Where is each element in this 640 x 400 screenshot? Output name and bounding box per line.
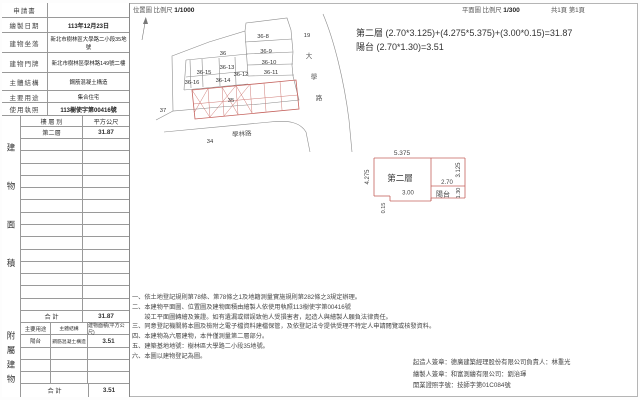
attached-area: 3.51 [88,335,129,347]
parcel-label: 36-13 [220,65,235,71]
empty-row [21,213,129,225]
dim-left: 4.275 [365,169,371,185]
col-header-use: 主要用途 [21,323,51,334]
floor-plan-title: 平面圖 [462,7,481,14]
empty-row [21,139,129,151]
dim-balcony: 1.30 [456,188,462,199]
total-area: 31.87 [83,311,129,322]
dim-bottom: 3.00 [402,191,414,197]
parcel-label: 36-9 [260,49,272,55]
empty-row [21,151,129,163]
builder-signature: 起造人簽章：德廣建築經理股份有限公司負責人：林重光 [413,357,570,369]
info-row-use: 主要用途 集合住宅 [2,91,129,103]
col-header-structure: 主體結構 [51,323,88,334]
empty-row [21,188,129,200]
info-label: 建物門牌 [2,53,48,72]
col-header-floor: 樓 層 別 [21,116,83,126]
total-label: 合 計 [21,384,89,397]
note-line: 一、依土地登記規則第78條、第78條之1及地籍測量實施規則第282條之3規定辦理… [132,293,502,303]
attached-total-row: 合 計 3.51 [21,384,129,397]
building-area-table: 建物面積 樓 層 別 平方公尺 第二層 31.87 [2,116,129,323]
building-area-strip: 建物面積 [2,116,21,323]
road-right-char: 路 [316,93,323,102]
parcel-label: 36-12 [234,72,249,78]
parcel-line [245,31,248,76]
notes-block: 一、依土地登記規則第78條、第78條之1及地籍測量實施規則第282條之3規定辦理… [132,293,502,362]
building-area-grid: 樓 層 別 平方公尺 第二層 31.87 合 計 31.87 [21,116,129,323]
info-label: 主體結構 [2,73,48,90]
parcel-label: 19 [304,33,310,39]
parcel-label: 36 [220,51,226,57]
dim-top: 5.375 [394,150,411,157]
info-row-date: 繪製日期 113年12月23日 [2,18,129,33]
attached-grid: 主要用途 主體結構 建物面積(平方公尺) 陽台 鋼筋混凝土構造 3.51 合 計… [21,323,129,397]
dim-strip: 0.15 [381,203,387,214]
parcel-label: 34 [207,139,214,145]
strip-label: 建物面積 [5,143,17,297]
drafter-signature: 繪製人簽章：和富測繪有限公司：劉治琿 [413,369,570,381]
info-value: 鋼筋混凝土構造 [48,73,129,90]
info-label: 建物坐落 [2,33,48,52]
info-value: 新北市樹林區大學路二小段35地號 [48,33,129,52]
left-info-panel: 申請書 繪製日期 113年12月23日 建物坐落 新北市樹林區大學路二小段35地… [2,3,130,397]
floor-plan-diagram: 5.375 第二層 4.275 3.125 2.70 陽台 1.30 3.00 … [360,140,510,220]
note-line: 竣工平面圖轉繪及簽證。如有遺漏或錯誤致他人受損害者，起造人與繪製人願負法律責任。 [132,313,502,323]
total-label: 合 計 [21,311,83,322]
area-row-floor2: 第二層 31.87 [21,127,129,139]
floor-plan-header: 平面圖 比例尺 1/300 [462,5,520,14]
signature-block: 起造人簽章：德廣建築經理股份有限公司負責人：林重光 繪製人簽章：和富測繪有限公司… [413,357,570,392]
empty-row [21,164,129,176]
attached-structure: 鋼筋混凝土構造 [51,335,88,347]
parcel-label: 36-10 [262,60,277,66]
page-indicator: 共1頁 第1頁 [551,5,585,14]
info-row-structure: 主體結構 鋼筋混凝土構造 [2,73,129,91]
info-row-application: 申請書 [2,3,129,18]
balcony-label: 陽台 [436,190,450,199]
dim-inner: 2.70 [441,180,453,186]
info-label: 使用執照 [2,103,48,115]
road-bottom-name: 學林路 [232,128,253,138]
floor-name: 第二層 [21,127,83,138]
empty-row [21,225,129,237]
info-value: 113年12月23日 [48,18,129,32]
empty-row [21,286,129,298]
parcel-line [235,57,236,85]
attached-row-balcony: 陽台 鋼筋混凝土構造 3.51 [21,335,129,348]
parcel-label: 37 [160,108,166,114]
road-right-char: 大 [306,51,313,60]
strip-label: 附屬建物 [5,331,17,389]
location-map: 36-8 36-9 36-10 36-11 36-12 36-13 36-14 … [130,10,365,158]
empty-row [21,348,129,360]
info-value: 113樹使字第00416號 [48,103,129,115]
dim-right: 3.125 [456,162,462,178]
parcel-label: 36-16 [185,80,200,86]
attached-use: 陽台 [21,335,51,347]
parcel-label: 36-11 [264,70,278,76]
empty-row [21,262,129,274]
room-label: 第二層 [387,173,413,183]
subject-parcel-label: 35 [228,98,234,104]
attached-strip: 附屬建物 [2,323,21,397]
empty-row [21,372,129,384]
north-arrow-icon [142,17,148,40]
note-line: 五、建築基地地號：樹林區大學路二小段35地號。 [132,342,502,352]
total-area: 3.51 [89,384,129,397]
empty-row [21,176,129,188]
info-value: 新北市樹林區學林路149號二樓 [48,53,129,72]
formula-line-1: 第二層 (2.70*3.125)+(4.275*5.375)+(3.00*0.1… [356,27,572,41]
road-right-edge [323,14,352,152]
col-header-sqm: 平方公尺 [83,116,129,126]
parcel-label: 36-8 [257,34,269,40]
info-label: 申請書 [2,3,48,17]
empty-row [21,200,129,212]
col-header-area: 建物面積(平方公尺) [88,323,129,334]
note-line: 四、本建物為六層建物，本件僅測量第二層部分。 [132,332,502,342]
empty-row [21,274,129,286]
attached-header-row: 主要用途 主體結構 建物面積(平方公尺) [21,323,129,335]
attached-building-table: 附屬建物 主要用途 主體結構 建物面積(平方公尺) 陽台 鋼筋混凝土構造 3.5… [2,323,129,397]
info-value [48,3,129,17]
parcel-label: 36-14 [216,78,232,84]
empty-row [21,237,129,249]
scale-label: 比例尺 [483,7,502,14]
info-row-license: 使用執照 113樹使字第00416號 [2,103,129,116]
license-number: 開業證照字號：技師字第01C084號 [413,380,570,392]
empty-row [21,299,129,311]
area-header-row: 樓 層 別 平方公尺 [21,116,129,127]
subject-building-outline [192,80,299,119]
empty-row [21,360,129,372]
formula-line-2: 陽台 (2.70*1.30)=3.51 [356,41,572,55]
parcel-label: 36-15 [197,70,212,76]
note-line: 三、同意登記機關將本圖及檢附之電子檔資料建檔保管，及依登記法令提供受理不特定人申… [132,322,502,332]
area-formula: 第二層 (2.70*3.125)+(4.275*5.375)+(3.00*0.1… [356,27,572,54]
note-line: 二、本建物平面圖、位置圖及建物面積由繪製人依使用執照113樹使字第00416號 [132,303,502,313]
parcel-line [186,54,248,60]
info-row-location: 建物坐落 新北市樹林區大學路二小段35地號 [2,33,129,53]
info-label: 繪製日期 [2,18,48,32]
info-row-address: 建物門牌 新北市樹林區學林路149號二樓 [2,53,129,73]
info-label: 主要用途 [2,91,48,102]
floor-area: 31.87 [83,127,129,138]
road-right-char: 學 [311,72,318,81]
info-value: 集合住宅 [48,91,129,102]
floor-plan-scale: 1/300 [503,7,520,14]
empty-row [21,250,129,262]
